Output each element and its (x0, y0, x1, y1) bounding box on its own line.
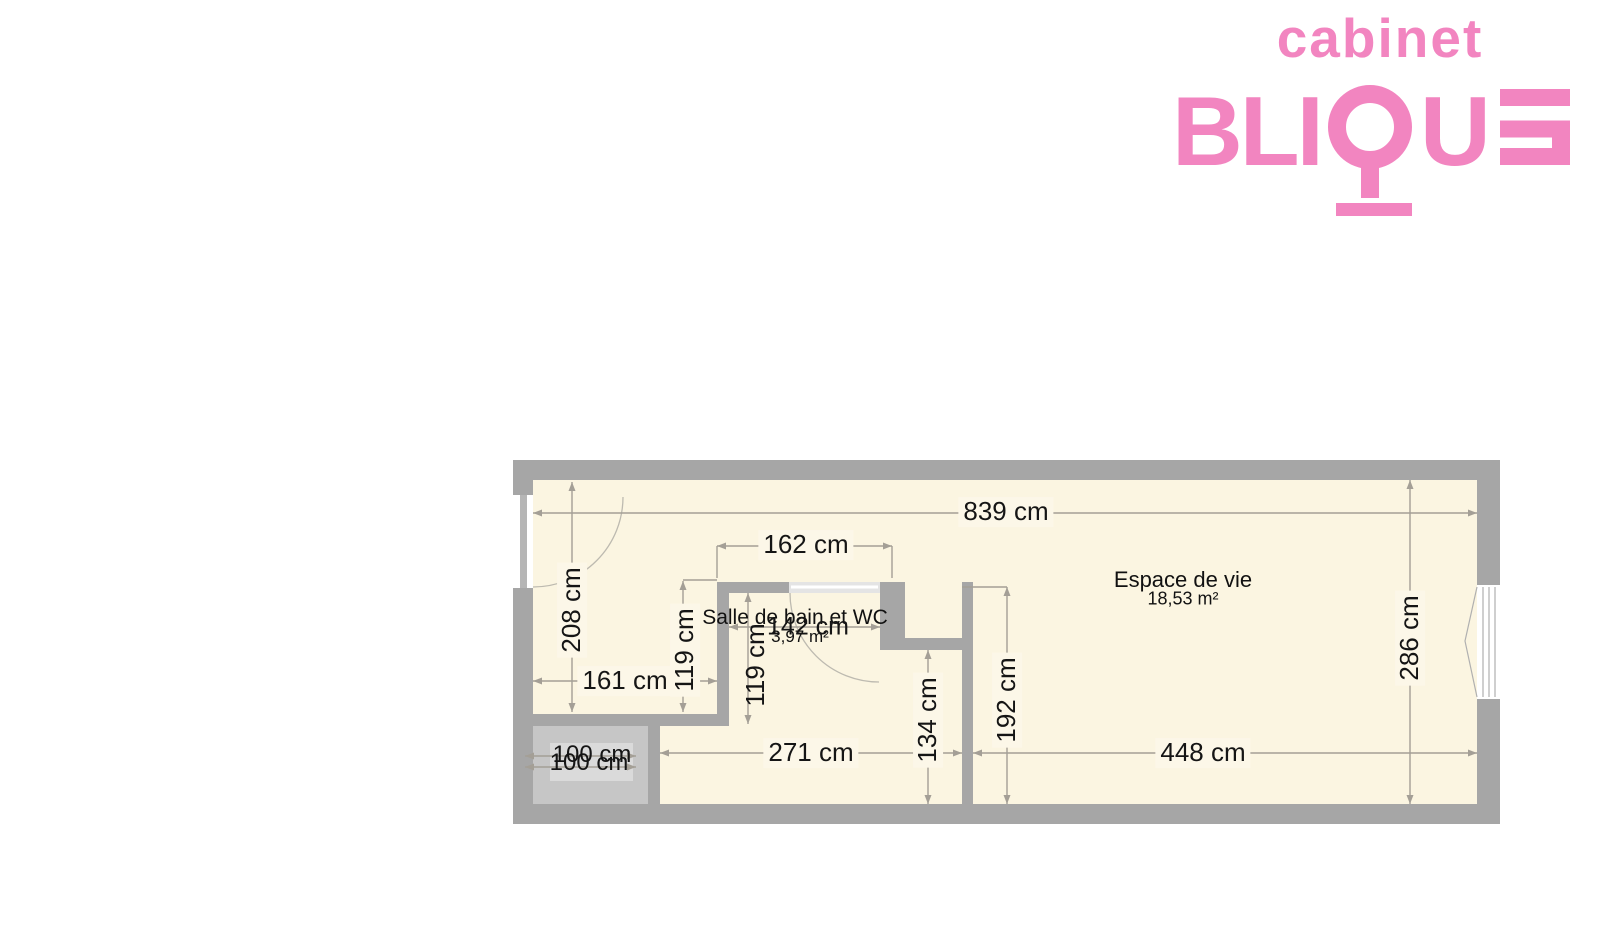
logo-cabinet-text: cabinet (1250, 6, 1510, 70)
dimension-label-161: 161 cm (577, 666, 672, 696)
dimension-label-839: 839 cm (958, 497, 1053, 527)
logo-letters-bli: BLI (1172, 85, 1321, 186)
floor-plan: Espace de vie 18,53 m² Salle de bain et … (513, 460, 1500, 824)
logo-q-tail (1361, 156, 1379, 198)
logo-underline (1336, 203, 1412, 216)
logo-letter-u: U (1420, 85, 1491, 186)
logo-blique-icon: BLI U (1168, 85, 1588, 225)
logo-letter-e (1500, 89, 1570, 165)
dimension-label-100-b: 100 cm (550, 749, 629, 777)
dimension-label-192: 192 cm (992, 652, 1022, 747)
dimension-label-162: 162 cm (758, 530, 853, 560)
dimension-label-286: 286 cm (1395, 590, 1425, 685)
dimension-label-134: 134 cm (913, 672, 943, 767)
room-area-living: 18,53 m² (1147, 589, 1218, 610)
dimension-label-271: 271 cm (763, 738, 858, 768)
logo-q-ring (1337, 94, 1403, 160)
dimension-label-142: 142 cm (767, 613, 849, 642)
page: cabinet BLI U (0, 0, 1600, 925)
dimension-label-119-left: 119 cm (670, 603, 700, 696)
dimension-label-448: 448 cm (1155, 738, 1250, 768)
dimension-label-208: 208 cm (557, 562, 587, 657)
